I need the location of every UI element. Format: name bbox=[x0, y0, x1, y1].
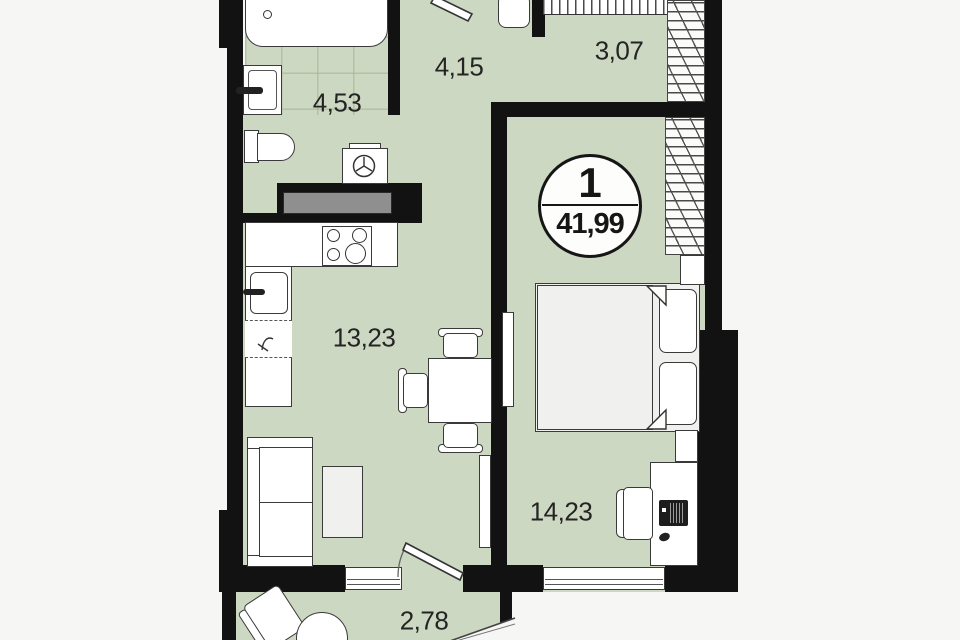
stove-burner bbox=[345, 243, 366, 264]
unit-number: 1 bbox=[541, 159, 639, 205]
nightstand bbox=[675, 430, 698, 462]
laptop-screen-dot bbox=[662, 508, 666, 512]
area-label-bedroom: 14,23 bbox=[530, 497, 593, 528]
kitchen-faucet bbox=[243, 289, 265, 295]
coffee-table bbox=[322, 466, 363, 538]
stove-burner bbox=[352, 228, 367, 243]
wall-bottom-bedroom bbox=[665, 565, 738, 592]
wardrobe-shelves bbox=[667, 0, 705, 102]
dining-chair bbox=[443, 333, 478, 358]
bathtub bbox=[245, 0, 388, 47]
wall-right-lower bbox=[698, 330, 738, 592]
area-label-balcony: 2,78 bbox=[400, 606, 449, 637]
toilet-bowl bbox=[257, 133, 295, 161]
bedroom-door-leaf bbox=[502, 312, 514, 407]
area-label-wardrobe: 3,07 bbox=[595, 36, 644, 67]
bathtub-drain bbox=[263, 10, 272, 19]
living-room-window bbox=[345, 567, 402, 590]
window-glazing-line bbox=[545, 584, 663, 585]
wall-bottom-middle bbox=[463, 565, 543, 592]
dining-chair bbox=[403, 373, 428, 408]
bedroom-window bbox=[543, 567, 665, 590]
floor-plan: 4,53 4,15 3,07 13,23 14,23 2,78 1 41,99 bbox=[0, 0, 960, 640]
living-room-door-leaf bbox=[479, 455, 491, 548]
wall-balcony-left bbox=[222, 592, 236, 640]
pillow bbox=[659, 289, 697, 353]
vent-duct bbox=[283, 192, 392, 214]
appliance-space-dashed bbox=[245, 320, 292, 358]
dining-table bbox=[428, 358, 492, 423]
sofa-cushion bbox=[259, 447, 313, 504]
wall-bathroom-right bbox=[388, 0, 400, 115]
area-label-hallway: 4,15 bbox=[435, 52, 484, 83]
wall-hall-bedroom bbox=[491, 102, 722, 117]
area-label-bathroom: 4,53 bbox=[313, 88, 362, 119]
washing-machine bbox=[342, 148, 388, 184]
wall-left bbox=[227, 0, 243, 512]
stove-burner bbox=[327, 248, 340, 261]
dining-chair bbox=[443, 423, 478, 448]
bedroom-wardrobe-shelves bbox=[665, 117, 705, 255]
area-label-kitchen-living: 13,23 bbox=[333, 323, 396, 354]
unit-total-area: 41,99 bbox=[541, 208, 639, 241]
nightstand bbox=[680, 255, 705, 285]
wall-right-upper bbox=[705, 0, 722, 330]
wall-balcony-right bbox=[500, 592, 512, 640]
entry-cabinet bbox=[498, 0, 530, 28]
pillow bbox=[659, 362, 697, 425]
laptop-keyboard bbox=[668, 503, 685, 523]
wardrobe-hanging-rail bbox=[543, 0, 667, 15]
sofa-cushion bbox=[259, 502, 313, 557]
stove-burner bbox=[327, 229, 340, 242]
badge-divider bbox=[542, 204, 638, 206]
window-glazing-line bbox=[347, 584, 400, 585]
wall-bottom-living bbox=[227, 565, 345, 592]
unit-area-badge: 1 41,99 bbox=[538, 154, 642, 258]
window-glazing-line bbox=[545, 579, 663, 580]
bathroom-faucet bbox=[236, 87, 263, 94]
desk-chair bbox=[623, 487, 653, 540]
bed-mattress bbox=[537, 285, 653, 430]
window-glazing-line bbox=[347, 579, 400, 580]
